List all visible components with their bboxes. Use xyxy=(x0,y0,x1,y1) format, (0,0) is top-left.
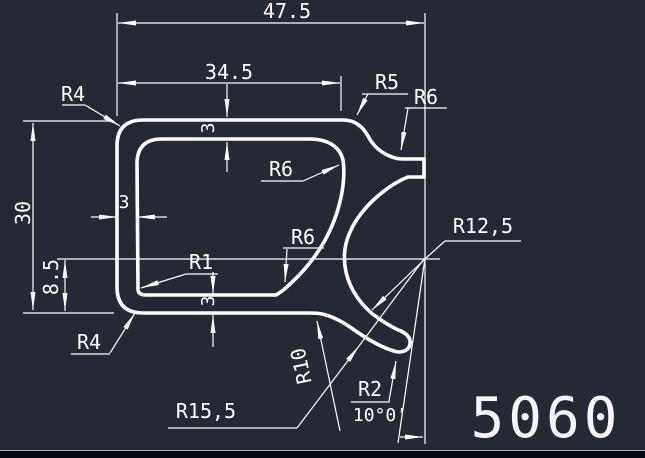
radius-r15-5-label: R15,5 xyxy=(176,401,236,421)
radius-r4-top-label: R4 xyxy=(61,84,85,104)
dim-width-inner-label: 34.5 xyxy=(205,62,253,82)
radius-r4-bottom-label: R4 xyxy=(77,332,101,352)
radius-r6-inner-bottom-label: R6 xyxy=(291,227,315,247)
cavity-contour xyxy=(137,139,344,295)
dim-wall-bottom-label: 3 xyxy=(200,296,218,307)
radius-r5-label: R5 xyxy=(375,72,399,92)
part-number: 5060 xyxy=(471,391,622,447)
bottom-border-band xyxy=(0,450,645,458)
cad-viewport: 47.5 34.5 30 8.5 3 3 3 R4 R5 R6 R6 R6 R1… xyxy=(0,0,645,458)
dimension-lines xyxy=(23,13,521,444)
angle-dimension-label: 10°0' xyxy=(353,407,407,425)
radius-r12-5-label: R12,5 xyxy=(453,216,513,236)
dim-width-overall-label: 47.5 xyxy=(263,1,311,21)
outer-contour xyxy=(117,120,424,352)
radius-r10-label: R10 xyxy=(287,346,314,385)
profile-outline xyxy=(117,120,424,352)
radius-r1-label: R1 xyxy=(189,252,213,272)
radius-r6-inner-top-label: R6 xyxy=(269,159,293,179)
dim-height-lower-label: 8.5 xyxy=(41,259,61,295)
dim-wall-left-label: 3 xyxy=(119,194,130,212)
dim-wall-top-label: 3 xyxy=(200,123,218,134)
radius-r6-top-right-label: R6 xyxy=(414,87,438,107)
dim-height-overall-label: 30 xyxy=(13,201,33,225)
radius-r2-label: R2 xyxy=(358,379,382,399)
